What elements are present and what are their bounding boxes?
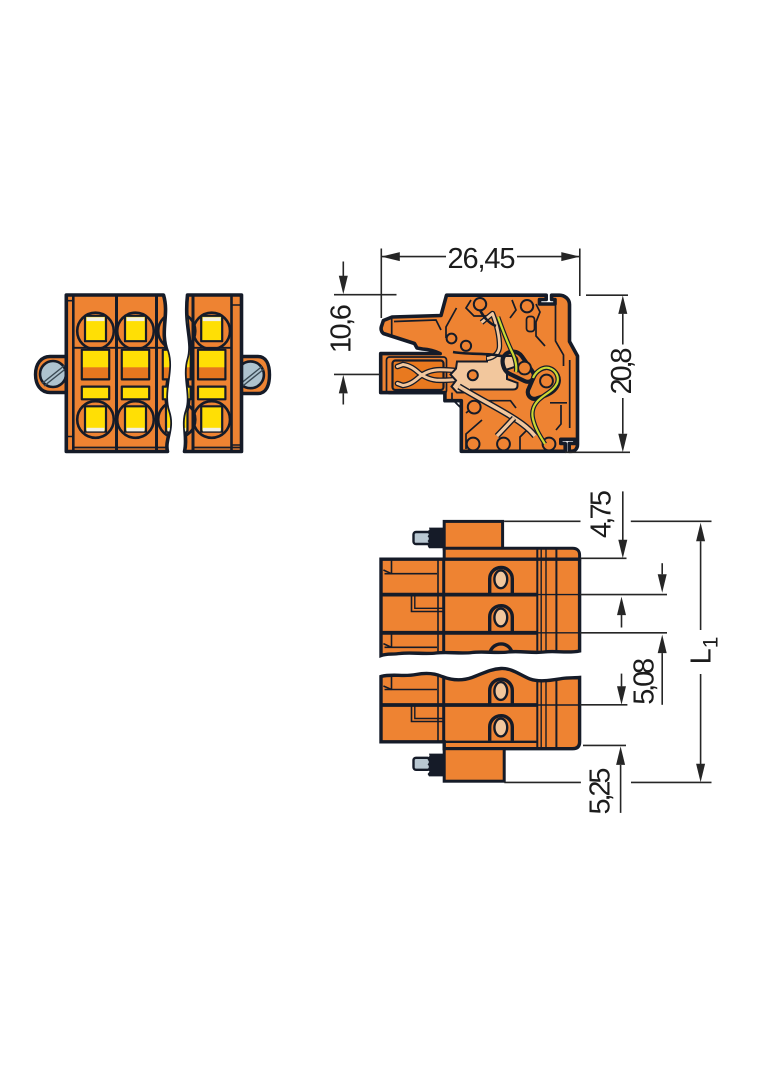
svg-text:4,75: 4,75 [586,490,618,538]
svg-text:L1: L1 [686,637,723,665]
svg-text:20,8: 20,8 [606,348,638,395]
svg-text:10,6: 10,6 [326,304,358,353]
svg-text:5,25: 5,25 [585,768,617,815]
svg-text:26,45: 26,45 [448,243,516,275]
svg-text:5,08: 5,08 [629,658,661,705]
